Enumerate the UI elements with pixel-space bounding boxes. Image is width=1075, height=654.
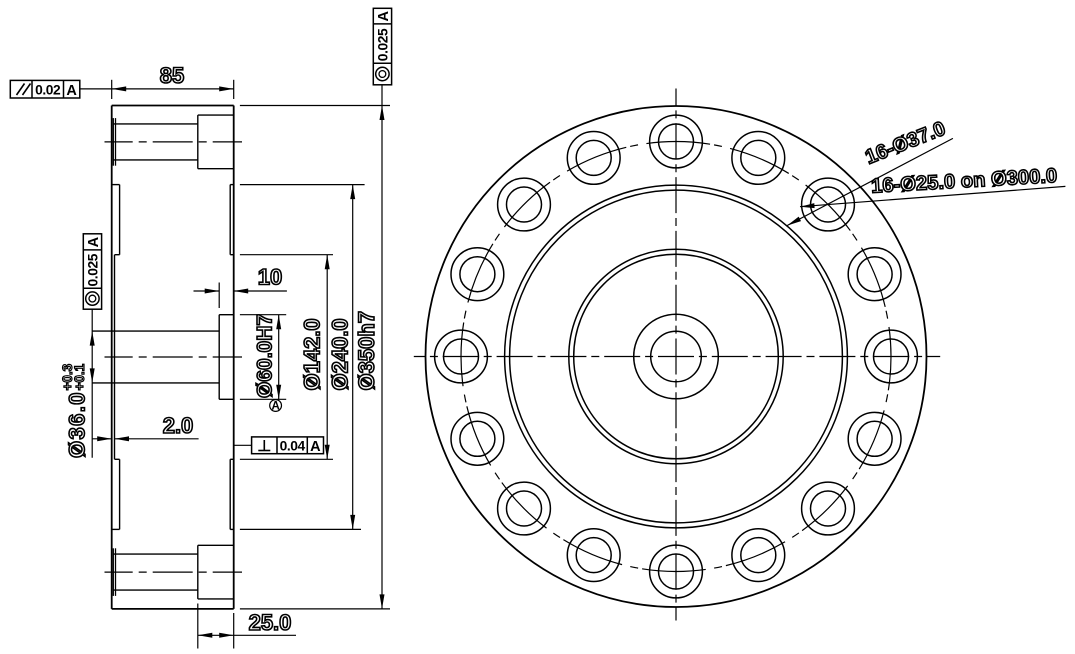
svg-text:10: 10 bbox=[258, 265, 282, 290]
svg-text:A: A bbox=[376, 11, 392, 22]
svg-text:Ø142.0: Ø142.0 bbox=[300, 318, 325, 390]
svg-text:0.025: 0.025 bbox=[86, 253, 101, 286]
svg-text:2.0: 2.0 bbox=[163, 413, 194, 438]
svg-text:85: 85 bbox=[160, 63, 184, 88]
svg-text:0.025: 0.025 bbox=[376, 28, 391, 61]
svg-text:25.0: 25.0 bbox=[249, 610, 292, 635]
svg-text:0.04: 0.04 bbox=[280, 439, 306, 454]
svg-text:+0.1: +0.1 bbox=[72, 363, 87, 390]
svg-text:A: A bbox=[66, 83, 77, 99]
svg-text:A: A bbox=[86, 236, 102, 247]
svg-text:Ø240.0: Ø240.0 bbox=[327, 318, 352, 390]
svg-text:Ø350h7: Ø350h7 bbox=[354, 311, 379, 391]
svg-text:Ø36.0: Ø36.0 bbox=[65, 391, 90, 458]
svg-text:A: A bbox=[310, 439, 321, 455]
svg-text:0.02: 0.02 bbox=[35, 83, 61, 98]
svg-text:A: A bbox=[271, 401, 279, 413]
svg-text:Ø60.0H7: Ø60.0H7 bbox=[254, 314, 277, 398]
